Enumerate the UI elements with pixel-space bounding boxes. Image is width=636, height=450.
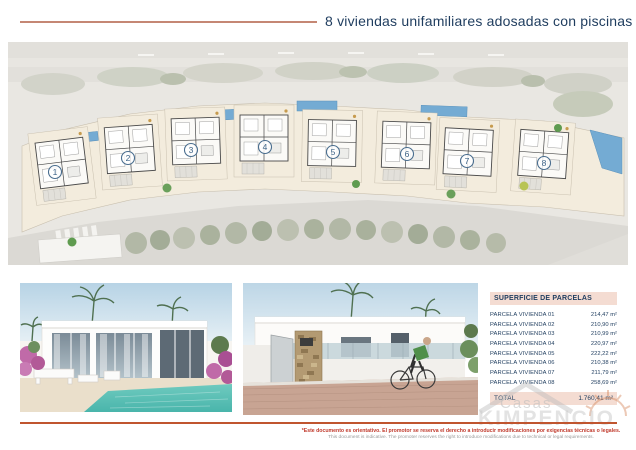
row-value: 258,69 m²	[591, 380, 617, 386]
sidewalk	[243, 377, 478, 415]
row-value: 214,47 m²	[591, 312, 617, 318]
table-row: PARCELA VIVIENDA 03 210,99 m²	[490, 329, 617, 339]
render-pool-view	[20, 283, 232, 412]
plot-number-8: 8	[542, 158, 547, 168]
row-label: PARCELA VIVIENDA 08	[490, 380, 555, 386]
row-label: PARCELA VIVIENDA 05	[490, 351, 555, 357]
plot-number-4: 4	[263, 142, 268, 152]
plot-number-3: 3	[189, 145, 194, 155]
disclaimer-english: This document is indicative. The promote…	[300, 435, 622, 441]
table-row: PARCELA VIVIENDA 07 211,79 m²	[490, 368, 617, 378]
render-street-view	[243, 283, 478, 415]
row-label: PARCELA VIVIENDA 04	[490, 341, 555, 347]
row-label: PARCELA VIVIENDA 01	[490, 312, 555, 318]
brochure-page: 8 viviendas unifamiliares adosadas con p…	[0, 0, 636, 450]
site-plan-drawing: 1 2 3 4 5 6 7 8	[8, 42, 628, 265]
plot-number-5: 5	[331, 147, 336, 157]
row-value: 210,38 m²	[591, 360, 617, 366]
table-row: PARCELA VIVIENDA 04 220,97 m²	[490, 339, 617, 349]
table-row: PARCELA VIVIENDA 05 222,22 m²	[490, 349, 617, 359]
plot-number-1: 1	[53, 167, 58, 177]
table-row: PARCELA VIVIENDA 01 214,47 m²	[490, 310, 617, 320]
stone-pillar	[295, 331, 322, 389]
table-row: PARCELA VIVIENDA 06 210,38 m²	[490, 358, 617, 368]
row-label: PARCELA VIVIENDA 07	[490, 370, 555, 376]
street-view-drawing	[243, 283, 478, 415]
total-value: 1.760,41 m²	[578, 395, 613, 402]
row-value: 222,22 m²	[591, 351, 617, 357]
plot-number-6: 6	[405, 149, 410, 159]
row-value: 210,90 m²	[591, 322, 617, 328]
pool-view-drawing	[20, 283, 232, 412]
plot-number-2: 2	[126, 153, 131, 163]
disclaimer: *Este documento es orientativo. El promo…	[300, 428, 622, 441]
row-value: 210,99 m²	[591, 331, 617, 337]
intercom-panel	[300, 338, 313, 346]
table-title: SUPERFICIE DE PARCELAS	[490, 292, 617, 305]
row-label: PARCELA VIVIENDA 06	[490, 360, 555, 366]
footer-accent-line	[20, 422, 617, 424]
disclaimer-spanish: *Este documento es orientativo. El promo…	[300, 428, 622, 435]
page-title: 8 viviendas unifamiliares adosadas con p…	[325, 13, 620, 29]
row-label: PARCELA VIVIENDA 03	[490, 331, 555, 337]
total-label: TOTAL	[494, 395, 516, 402]
row-value: 220,97 m²	[591, 341, 617, 347]
table-total-row: TOTAL 1.760,41 m²	[490, 392, 617, 405]
site-plan-image: 1 2 3 4 5 6 7 8	[8, 42, 628, 265]
table-row: PARCELA VIVIENDA 02 210,90 m²	[490, 320, 617, 330]
row-value: 211,79 m²	[591, 370, 617, 376]
parcel-surface-table: SUPERFICIE DE PARCELAS PARCELA VIVIENDA …	[490, 292, 617, 405]
plot-number-7: 7	[465, 156, 470, 166]
row-label: PARCELA VIVIENDA 02	[490, 322, 555, 328]
title-accent-line	[20, 21, 317, 23]
table-row: PARCELA VIVIENDA 08 258,69 m²	[490, 378, 617, 388]
